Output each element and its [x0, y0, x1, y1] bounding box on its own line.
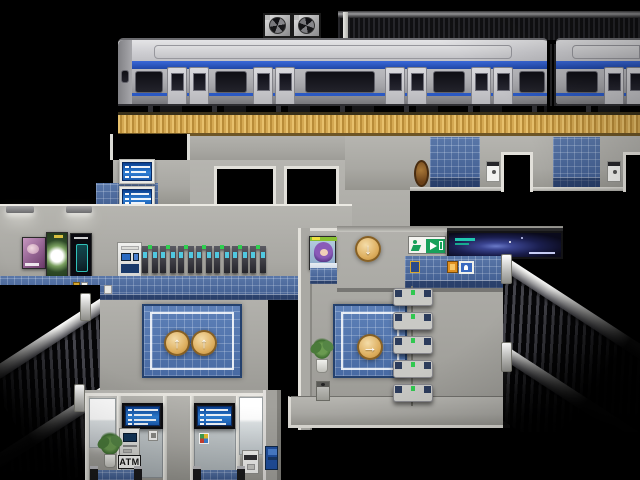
fan-blade-icon: [269, 17, 286, 34]
potted-plant: [312, 337, 332, 377]
pillar-tile-base: [310, 268, 337, 284]
escalator-down-right[interactable]: [503, 248, 640, 432]
ticket-gate[interactable]: [393, 336, 433, 354]
blue-tile-wall-panel: [553, 137, 600, 188]
exit-arrow-icon: [430, 242, 437, 250]
ticket-gate[interactable]: [178, 243, 194, 276]
ticket-gate[interactable]: [142, 243, 158, 276]
gate-threshold: [95, 470, 138, 480]
train-window: [135, 71, 163, 93]
train-window: [215, 71, 247, 93]
crest-plaque: [410, 261, 420, 273]
ticket-gate[interactable]: [196, 243, 212, 276]
up-stairs-marker[interactable]: ↑: [164, 330, 190, 356]
ceiling-beam: [338, 11, 640, 18]
wall-top-edge: [85, 393, 268, 396]
notice-plaque: [447, 261, 458, 273]
escalator-end-post: [80, 293, 91, 321]
potted-plant: [99, 431, 121, 469]
right-exit-marker[interactable]: →: [357, 334, 383, 360]
wall-light-fixture: [66, 206, 92, 213]
wall-frame-post: [163, 396, 167, 480]
ceiling-fan: [263, 13, 292, 38]
tactile-paving-strip: [118, 112, 640, 136]
fire-extinguisher-cabinet[interactable]: [486, 161, 500, 182]
gate-post: [237, 466, 245, 480]
train-door-pair: [253, 67, 295, 109]
escalator-end-post: [501, 342, 512, 372]
cab-window: [121, 70, 129, 83]
platform-doorway[interactable]: [623, 152, 640, 192]
ticket-gate[interactable]: [250, 243, 266, 276]
platform-info-sign: [119, 159, 155, 184]
train-door-pair: [167, 67, 209, 109]
ticket-gate[interactable]: [160, 243, 176, 276]
ticket-gate[interactable]: [393, 384, 433, 402]
gate-post: [193, 466, 201, 480]
blue-tile-wall-panel: [430, 137, 480, 188]
departure-screen: [194, 403, 235, 429]
intercom-box[interactable]: [148, 430, 158, 441]
escalator-end-post: [74, 384, 85, 412]
gate-threshold: [196, 470, 238, 480]
ticket-gate[interactable]: [393, 360, 433, 378]
gate-post: [90, 466, 98, 480]
ticket-gate[interactable]: [393, 288, 433, 306]
ticket-window-plaque: [459, 261, 474, 274]
gate-post: [134, 466, 142, 480]
cosmetics-poster: [22, 237, 46, 269]
train: [118, 38, 640, 114]
train-window-wide: [305, 71, 375, 93]
lit-office-door[interactable]: [239, 397, 263, 455]
vending-machine[interactable]: [265, 446, 278, 470]
wall-light-fixture: [6, 206, 34, 213]
small-wall-tag: [104, 285, 112, 294]
escalator-end-post: [501, 254, 512, 284]
plant-pot: [316, 359, 328, 373]
trash-bin[interactable]: [316, 381, 330, 401]
fire-extinguisher-cabinet[interactable]: [607, 161, 621, 182]
running-man-icon: [411, 245, 421, 251]
running-man-icon: [413, 240, 417, 244]
train-car: [118, 38, 548, 104]
train-door-pair: [604, 67, 640, 109]
track-opening[interactable]: [110, 134, 190, 160]
darkness-fade: [503, 248, 640, 432]
fan-mount: [294, 15, 299, 20]
ticket-gate[interactable]: [393, 312, 433, 330]
ticket-gate[interactable]: [214, 243, 230, 276]
departure-screen: [122, 403, 163, 429]
train-window: [566, 71, 598, 93]
train-car: [556, 38, 640, 104]
down-stairs-marker[interactable]: ↓: [355, 236, 381, 262]
up-stairs-marker[interactable]: ↑: [191, 330, 217, 356]
train-roof-light-panel: [572, 45, 640, 59]
train-door-pair: [385, 67, 427, 109]
game-viewport: ↑ ↑ ↓: [0, 0, 640, 480]
train-roof-light-panel: [154, 45, 512, 59]
fan-mount: [265, 15, 270, 20]
exit-sign: [408, 236, 446, 254]
water-lily-poster: [46, 232, 68, 282]
ticket-gate-row[interactable]: [142, 243, 268, 279]
character-face: [320, 249, 328, 256]
train-door-pair: [471, 67, 513, 109]
train-window: [433, 71, 465, 93]
fan-blade-icon: [298, 17, 315, 34]
anime-poster: [309, 236, 336, 270]
ceiling-fan: [292, 13, 321, 38]
platform-doorway[interactable]: [501, 152, 533, 192]
plant-pot: [104, 454, 116, 468]
wooden-sign-board: [414, 160, 429, 187]
colorful-sticker: [199, 433, 209, 444]
ticket-gate[interactable]: [232, 243, 248, 276]
smartphone-ad-poster: [70, 233, 92, 280]
train-window: [519, 71, 545, 93]
